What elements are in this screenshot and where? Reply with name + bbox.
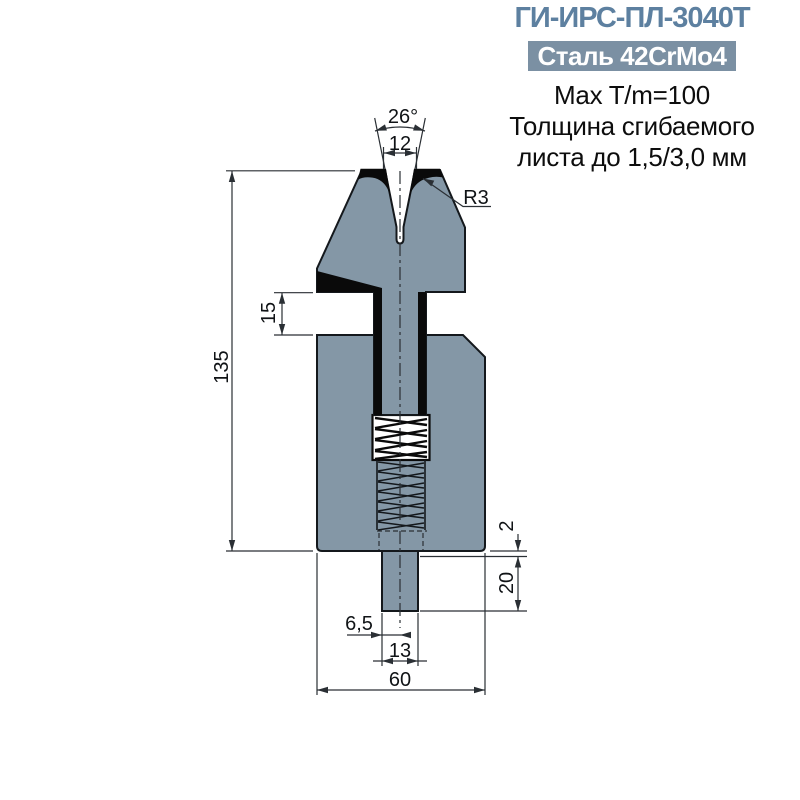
dim-vee-angle: 26° bbox=[388, 106, 418, 128]
dim-tang-half-width: 6,5 bbox=[345, 613, 373, 635]
dim-tang-height: 20 bbox=[496, 572, 518, 594]
dim-body-width: 60 bbox=[389, 669, 411, 691]
page: ГИ-ИРС-ПЛ-3040Т Сталь 42CrMo4 Max T/m=10… bbox=[0, 0, 800, 800]
dim-tang-width: 13 bbox=[389, 640, 411, 662]
dim-step: 2 bbox=[496, 520, 518, 531]
dim-slot-depth: 15 bbox=[258, 302, 280, 324]
dim-total-height: 135 bbox=[211, 350, 233, 383]
clearance-strip-right bbox=[418, 292, 426, 415]
clearance-strip-left bbox=[374, 290, 382, 415]
dim-vee-width: 12 bbox=[389, 133, 411, 155]
technical-drawing: 26° 12 R3 135 15 2 20 6,5 13 60 bbox=[0, 0, 800, 800]
dim-edge-radius: R3 bbox=[463, 187, 489, 209]
